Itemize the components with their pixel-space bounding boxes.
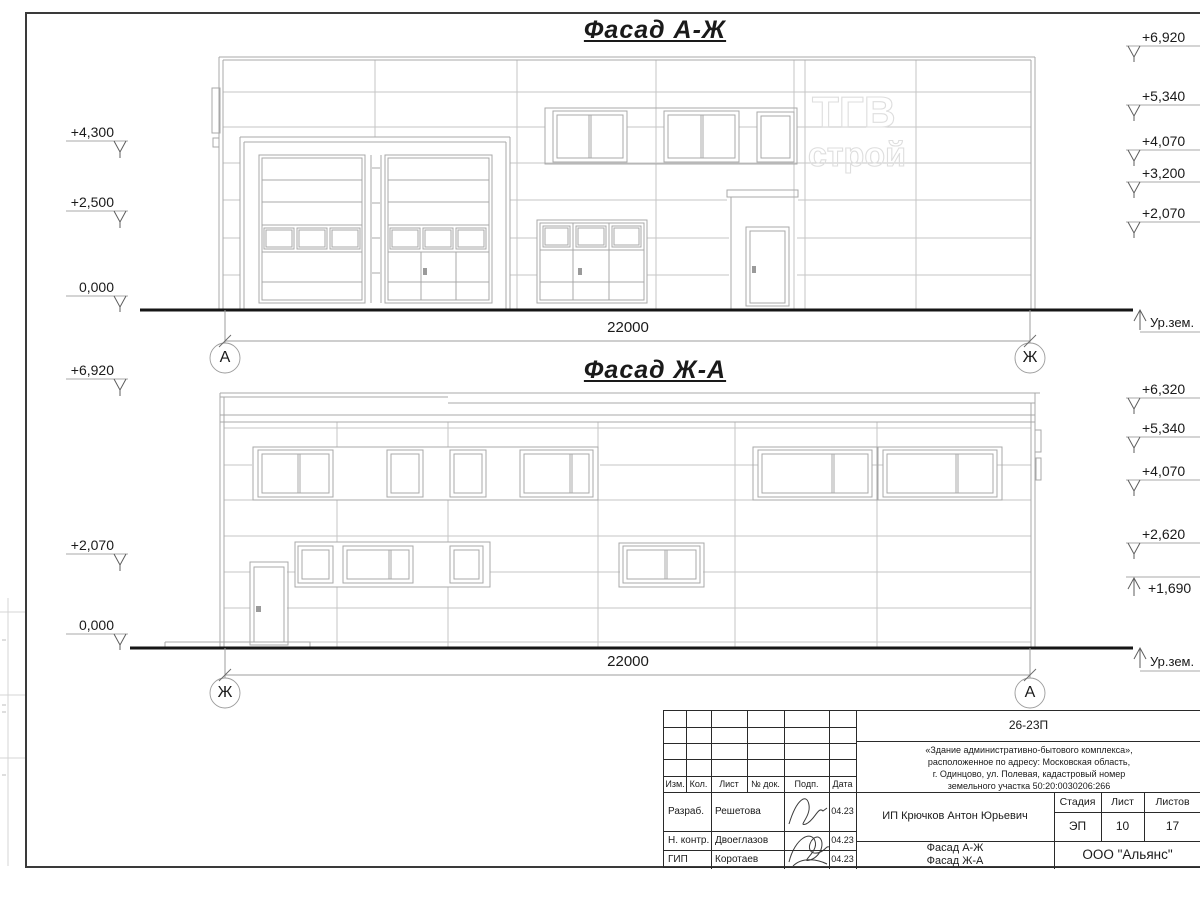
elevation-mark: +2,070 [52, 537, 114, 553]
stamp-drawing-title: Фасад А-Ж Фасад Ж-А [856, 841, 1054, 869]
stamp-sheets-total: 17 [1144, 812, 1200, 841]
stamp-role: Разраб. [668, 792, 711, 831]
elevation-mark: +2,500 [52, 194, 114, 210]
elevation-mark: 0,000 [52, 617, 114, 633]
elevation-mark: +6,920 [1142, 29, 1200, 45]
elevation-mark: +3,200 [1142, 165, 1200, 181]
stamp-sheet-number: 10 [1101, 812, 1144, 841]
axis-bottom-right: А [1017, 684, 1043, 702]
title-block: Изм. Кол. Лист № док. Подп. Дата Разраб.… [663, 710, 1200, 868]
stamp-col-doc: № док. [747, 776, 784, 792]
elevation-mark: +4,300 [52, 124, 114, 140]
drawing-sheet: ТГВ строй Фасад А-Ж Фасад Ж-А 22000 2200… [0, 0, 1200, 900]
facade-top-title: Фасад А-Ж [520, 16, 790, 45]
stamp-date: 04.23 [829, 831, 856, 850]
dimension-top: 22000 [570, 319, 686, 336]
stamp-col-podp: Подп. [784, 776, 829, 792]
axis-top-right: Ж [1017, 349, 1043, 367]
ground-level-label-top: Ур.зем. [1150, 315, 1194, 330]
stamp-col-kol: Кол. [686, 776, 711, 792]
facade-bottom-title: Фасад Ж-А [520, 356, 790, 385]
stamp-name: Коротаев [715, 850, 783, 869]
stamp-stage-header: Стадия [1054, 792, 1101, 812]
elevation-mark: +4,070 [1142, 133, 1200, 149]
elevation-mark: +1,690 [1148, 580, 1200, 596]
stamp-col-izm: Изм. [664, 776, 686, 792]
stamp-role: Н. контр. [668, 831, 711, 850]
elevation-mark: +2,620 [1142, 526, 1200, 542]
axis-top-left: А [212, 349, 238, 367]
stamp-project-description: «Здание административно-бытового комплек… [860, 744, 1198, 792]
elevation-mark: +4,070 [1142, 463, 1200, 479]
stamp-client: ИП Крючков Антон Юрьевич [856, 792, 1054, 841]
axis-bottom-left: Ж [212, 684, 238, 702]
ground-level-label-bottom: Ур.зем. [1150, 654, 1194, 669]
elevation-mark: +5,340 [1142, 88, 1200, 104]
project-line: расположенное по адресу: Московская обла… [860, 756, 1198, 768]
elevation-mark: +6,320 [1142, 381, 1200, 397]
drawing-title-line: Фасад Ж-А [927, 855, 984, 868]
project-line: г. Одинцово, ул. Полевая, кадастровый но… [860, 768, 1198, 780]
stamp-doc-code: 26-23П [856, 711, 1200, 741]
stamp-date: 04.23 [829, 850, 856, 869]
stamp-name: Решетова [715, 792, 783, 831]
stamp-name: Двоеглазов [715, 831, 783, 850]
stamp-col-data: Дата [829, 776, 856, 792]
elevation-mark: +6,920 [52, 362, 114, 378]
stamp-role: ГИП [668, 850, 711, 869]
drawing-title-line: Фасад А-Ж [927, 842, 984, 855]
project-line: земельного участка 50:20:0030206:266 [860, 780, 1198, 792]
stamp-col-list: Лист [711, 776, 747, 792]
elevation-mark: +2,070 [1142, 205, 1200, 221]
stamp-date: 04.23 [829, 792, 856, 831]
dimension-bottom: 22000 [570, 653, 686, 670]
stamp-sheet-header: Лист [1101, 792, 1144, 812]
stamp-stage-value: ЭП [1054, 812, 1101, 841]
elevation-mark: +5,340 [1142, 420, 1200, 436]
project-line: «Здание административно-бытового комплек… [860, 744, 1198, 756]
elevation-mark: 0,000 [52, 279, 114, 295]
stamp-sheets-header: Листов [1144, 792, 1200, 812]
stamp-organization: ООО "Альянс" [1054, 841, 1200, 869]
